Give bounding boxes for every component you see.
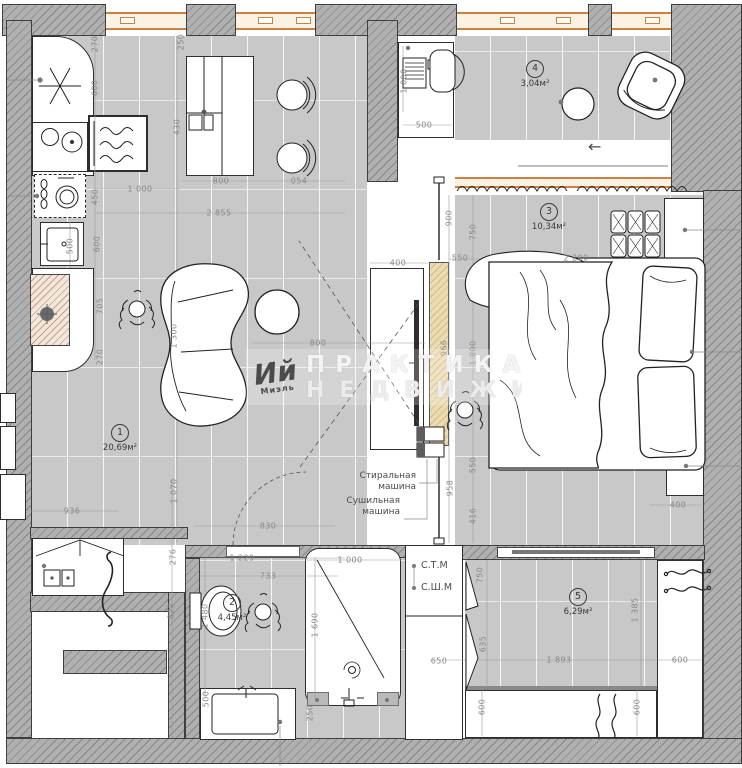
- watermark-line1: ПРАКТИКА: [306, 352, 522, 378]
- dimension-label: 550: [452, 254, 468, 263]
- dimension-label: 600: [633, 699, 642, 715]
- dimension-label: 2 200: [564, 254, 589, 263]
- watermark: Ий Миэль ПРАКТИКА НЕДВИЖИМ: [246, 349, 522, 405]
- room-area: 10,34м²: [527, 222, 571, 232]
- annotation: Сушильнаямашина: [316, 496, 400, 517]
- dimension-label: 1 229: [230, 554, 255, 563]
- dimension-label: 600: [91, 80, 100, 96]
- shaft-symbol-icon: [37, 304, 57, 324]
- annotation-line: С.Т.М: [421, 560, 463, 571]
- room-area: 4,45м²: [210, 613, 254, 623]
- watermark-logo-text: Ий: [246, 356, 307, 388]
- room-area: 6,29м²: [556, 607, 600, 617]
- pouf: [559, 88, 594, 120]
- annotation: ←: [588, 138, 618, 157]
- annotation: С.Т.М: [421, 560, 463, 571]
- dimension-label: 635: [479, 636, 488, 652]
- room-number: 5: [569, 588, 587, 606]
- dimension-label: 276: [169, 549, 178, 565]
- dimension-label: 500: [66, 238, 75, 254]
- dimension-label: 400: [390, 259, 406, 268]
- entry-wardrobe-detail: [36, 540, 124, 626]
- oven-icon: [94, 121, 133, 166]
- person-figure: [119, 291, 154, 330]
- towel-hooks: [664, 569, 710, 592]
- room-marker: 120,69м²: [98, 424, 142, 453]
- floor-plan: Ий Миэль ПРАКТИКА НЕДВИЖИМ 2702506004304…: [0, 0, 742, 768]
- lounge-chair: [613, 47, 691, 125]
- dimension-label: 958: [446, 480, 455, 496]
- room-number: 1: [111, 424, 129, 442]
- dresser: [611, 211, 660, 257]
- vanity-detail: [212, 686, 282, 766]
- annotation-line: Стиральная: [330, 471, 416, 482]
- room-area: 3,04м²: [513, 79, 557, 89]
- closet-handles: [596, 694, 616, 738]
- dimension-label: 250: [306, 705, 315, 721]
- dimension-label: 430: [173, 119, 182, 135]
- dimension-label: 800: [213, 177, 229, 186]
- annotation: Стиральнаямашина: [330, 471, 416, 492]
- dimension-label: 600: [478, 699, 487, 715]
- room-marker: 310,34м²: [527, 203, 571, 232]
- dimension-label: 250: [177, 34, 186, 50]
- annotation: С.Ш.М: [421, 582, 467, 593]
- dimension-label: 400: [670, 501, 686, 510]
- room-marker: 43,04м²: [513, 60, 557, 89]
- dimension-label: 800: [310, 339, 326, 348]
- dimension-label: 705: [96, 298, 105, 314]
- dimension-label: 1 385: [631, 598, 640, 623]
- room-number: 3: [540, 203, 558, 221]
- stool-icon: [277, 77, 316, 176]
- watermark-line2: НЕДВИЖИМ: [306, 378, 522, 403]
- dimension-label: 270: [96, 349, 105, 365]
- dimension-label: 822: [167, 603, 176, 619]
- dimension-label: 1 300: [170, 324, 179, 349]
- dimension-label: 500: [202, 691, 211, 707]
- dimension-label: 1 000: [128, 185, 153, 194]
- room-marker: 24,45м²: [210, 594, 254, 623]
- room-area: 20,69м²: [98, 443, 142, 453]
- ceiling-light-icon: [8, 68, 81, 104]
- room-marker: 56,29м²: [556, 588, 600, 617]
- desk-computer-icon: [403, 46, 464, 92]
- dimension-label: 750: [469, 224, 478, 240]
- dimension-label: 2 855: [207, 209, 232, 218]
- dimension-label: 936: [64, 507, 80, 516]
- hob-icon: [42, 129, 83, 153]
- dimension-label: 1 000: [400, 69, 409, 94]
- dimension-label: 750: [476, 567, 485, 583]
- coffee-table: [255, 290, 299, 334]
- annotation-line: машина: [316, 507, 400, 518]
- room-number: 4: [526, 60, 544, 78]
- washer-dryer-stack-icon: [417, 427, 444, 457]
- dimension-label: 1 070: [170, 479, 179, 504]
- door-swing-arc: [233, 472, 306, 545]
- dimension-label: 733: [260, 572, 276, 581]
- dimension-label: 270: [91, 36, 100, 52]
- dimension-label: 600: [672, 656, 688, 665]
- curtain-wave: [457, 187, 687, 192]
- dimension-label: 550: [469, 457, 478, 473]
- dining-table-detail: [187, 57, 222, 175]
- dimension-label: 416: [469, 508, 478, 524]
- watermark-logo: Ий Миэль: [246, 356, 308, 397]
- leader-dot: [653, 78, 658, 83]
- annotation-line: С.Ш.М: [421, 582, 467, 593]
- dimension-label: 650: [431, 657, 447, 666]
- annotation-line: ←: [588, 138, 618, 157]
- dimension-label: 1 893: [547, 656, 572, 665]
- dimension-label: 1 000: [338, 556, 363, 565]
- dimension-label: 600: [93, 236, 102, 252]
- dimension-label: 450: [91, 189, 100, 205]
- dimension-label: 1 480: [201, 604, 210, 629]
- annotation-line: машина: [330, 482, 416, 493]
- watermark-text: ПРАКТИКА НЕДВИЖИМ: [306, 352, 522, 403]
- dimension-label: 1 690: [311, 613, 320, 638]
- dimension-label: 830: [260, 522, 276, 531]
- fridge-icon: [8, 178, 78, 209]
- room-number: 2: [223, 594, 241, 612]
- bathtub-detail: [315, 560, 389, 706]
- annotation-line: Сушильная: [316, 496, 400, 507]
- dimension-label: 500: [416, 121, 432, 130]
- dimension-label: 900: [445, 210, 454, 226]
- dimension-label: 054: [291, 177, 307, 186]
